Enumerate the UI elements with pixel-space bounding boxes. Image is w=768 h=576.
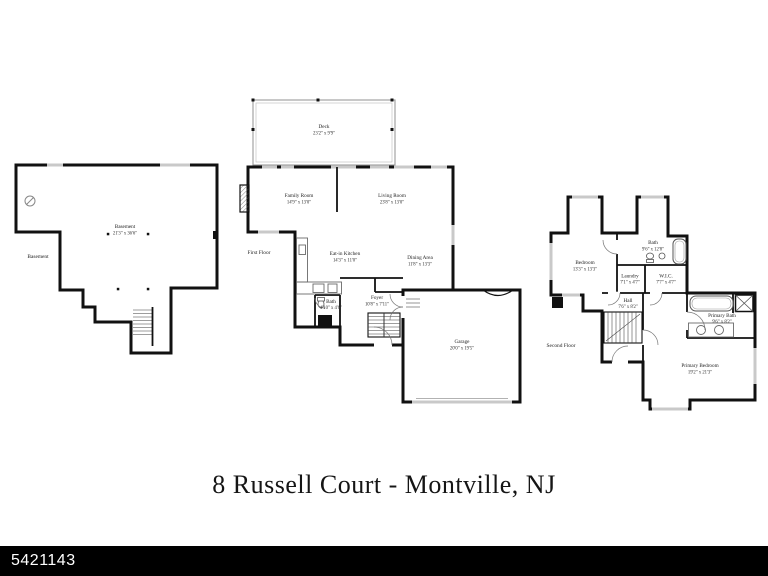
room-label-bedroom: Bedroom [575, 260, 594, 266]
room-label-wic: W.I.C. [659, 274, 673, 280]
room-label-garage: Garage [455, 339, 471, 345]
room-dims-bath2: 9'6" x 12'8" [642, 248, 664, 253]
primary-bathtub-icon [690, 296, 733, 311]
room-dims-garage: 20'0" x 19'5" [450, 347, 474, 352]
floorplan-sheet: Basement 21'3" x 36'6" Basement [0, 0, 768, 576]
room-dims-basement: 21'3" x 36'6" [113, 232, 137, 237]
photo-id-banner: 5421143 [0, 546, 768, 576]
floor-label-second-floor: Second Floor [547, 343, 576, 349]
hall-toilet-icon [647, 253, 654, 263]
chimney [318, 315, 332, 327]
shower-icon [736, 295, 754, 312]
hall-sink-icon [659, 253, 665, 259]
room-label-laundry: Laundry [621, 274, 639, 280]
room-dims-bath1: 4'10" x 4'6" [320, 306, 342, 311]
first-floor-plan: Deck 23'2" x 9'9" Family Room 14'9" x 13… [240, 99, 520, 403]
chimney-second-floor [552, 297, 563, 308]
room-label-living-room: Living Room [378, 193, 406, 199]
floor-label-first-floor: First Floor [248, 250, 271, 256]
room-label-foyer: Foyer [371, 295, 383, 301]
room-dims-primary-bath: 9'6" x 8'2" [712, 320, 732, 325]
room-label-basement: Basement [115, 224, 136, 230]
listing-id: 5421143 [0, 552, 76, 569]
room-dims-primary-bedroom: 19'2" x 21'3" [688, 371, 712, 376]
room-label-deck: Deck [319, 124, 330, 130]
room-label-hall: Hall [624, 298, 633, 304]
room-label-primary-bath: Primary Bath [708, 313, 736, 319]
room-dims-deck: 23'2" x 9'9" [313, 132, 335, 137]
room-label-eat-in-kitchen: Eat-in Kitchen [330, 251, 361, 257]
room-dims-dining-area: 11'8" x 13'3" [408, 263, 432, 268]
room-dims-family-room: 14'9" x 13'0" [287, 201, 311, 206]
hall-bathtub-icon [673, 239, 686, 264]
room-dims-living-room: 23'8" x 13'0" [380, 201, 404, 206]
room-label-dining-area: Dining Area [407, 255, 433, 261]
room-label-bath2: Bath [648, 240, 658, 246]
basement-plan: Basement 21'3" x 36'6" Basement [16, 165, 218, 353]
address-title: 8 Russell Court - Montville, NJ [0, 470, 768, 500]
room-dims-eat-in-kitchen: 14'3" x 11'0" [333, 259, 357, 264]
basement-door-jamb [213, 231, 218, 239]
floor-label-basement: Basement [27, 254, 49, 260]
room-dims-laundry: 7'1" x 4'7" [620, 281, 640, 286]
room-label-primary-bedroom: Primary Bedroom [681, 363, 718, 369]
second-floor-plan: Bedroom 13'3" x 13'3" Bath 9'6" x 12'8" … [547, 197, 755, 409]
room-dims-hall: 7'6" x 8'2" [618, 305, 638, 310]
room-label-bath1: Bath [326, 299, 336, 305]
room-dims-wic: 7'7" x 4'7" [656, 281, 676, 286]
room-dims-foyer: 10'8" x 7'11" [365, 303, 389, 308]
fireplace-icon [240, 185, 249, 212]
room-label-family-room: Family Room [285, 193, 314, 199]
room-dims-bedroom: 13'3" x 13'3" [573, 268, 597, 273]
floorplans-canvas: Basement 21'3" x 36'6" Basement [0, 0, 768, 545]
